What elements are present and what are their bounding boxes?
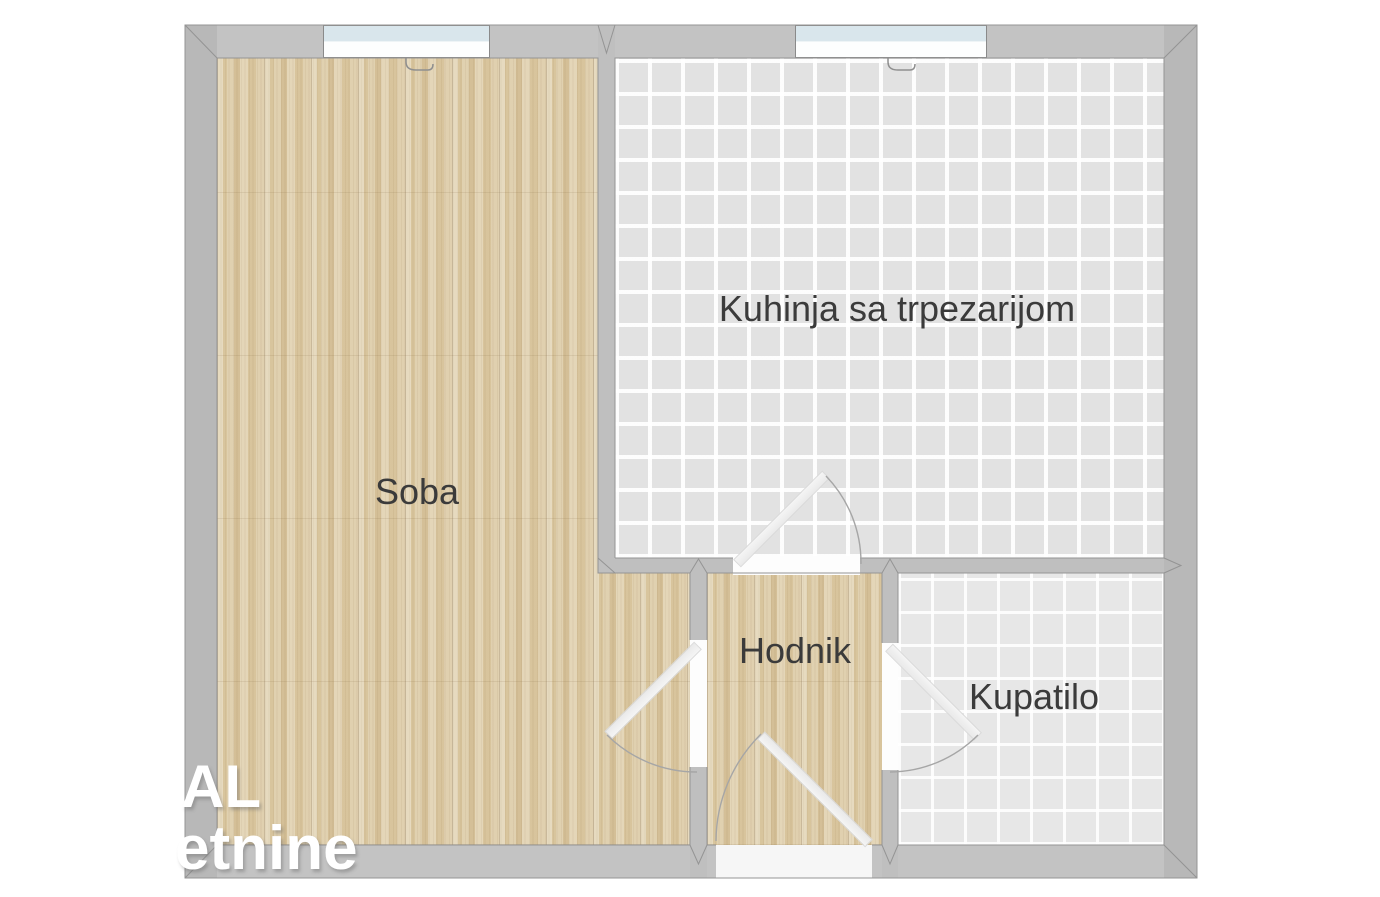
- door-opening-soba: [690, 640, 707, 767]
- wall-kuhinja-bottom: [598, 558, 1164, 573]
- room-label-hodnik: Hodnik: [739, 630, 851, 672]
- window-kuhinja: [795, 25, 987, 58]
- watermark-line2: etnine: [175, 818, 358, 880]
- room-label-kupatilo: Kupatilo: [969, 676, 1099, 718]
- window-soba: [323, 25, 490, 58]
- floorplan-canvas: Soba Kuhinja sa trpezarijom Hodnik Kupat…: [0, 0, 1380, 897]
- room-floor-hodnik: [707, 573, 882, 845]
- wall-soba-kuhinja: [598, 25, 615, 573]
- watermark-line1: AL: [181, 757, 261, 817]
- door-opening-kuhinja: [733, 556, 860, 575]
- room-label-kuhinja: Kuhinja sa trpezarijom: [719, 288, 1075, 330]
- door-opening-entry: [716, 845, 872, 878]
- room-label-soba: Soba: [375, 471, 459, 513]
- wall-right: [1164, 25, 1197, 878]
- wall-left: [185, 25, 217, 878]
